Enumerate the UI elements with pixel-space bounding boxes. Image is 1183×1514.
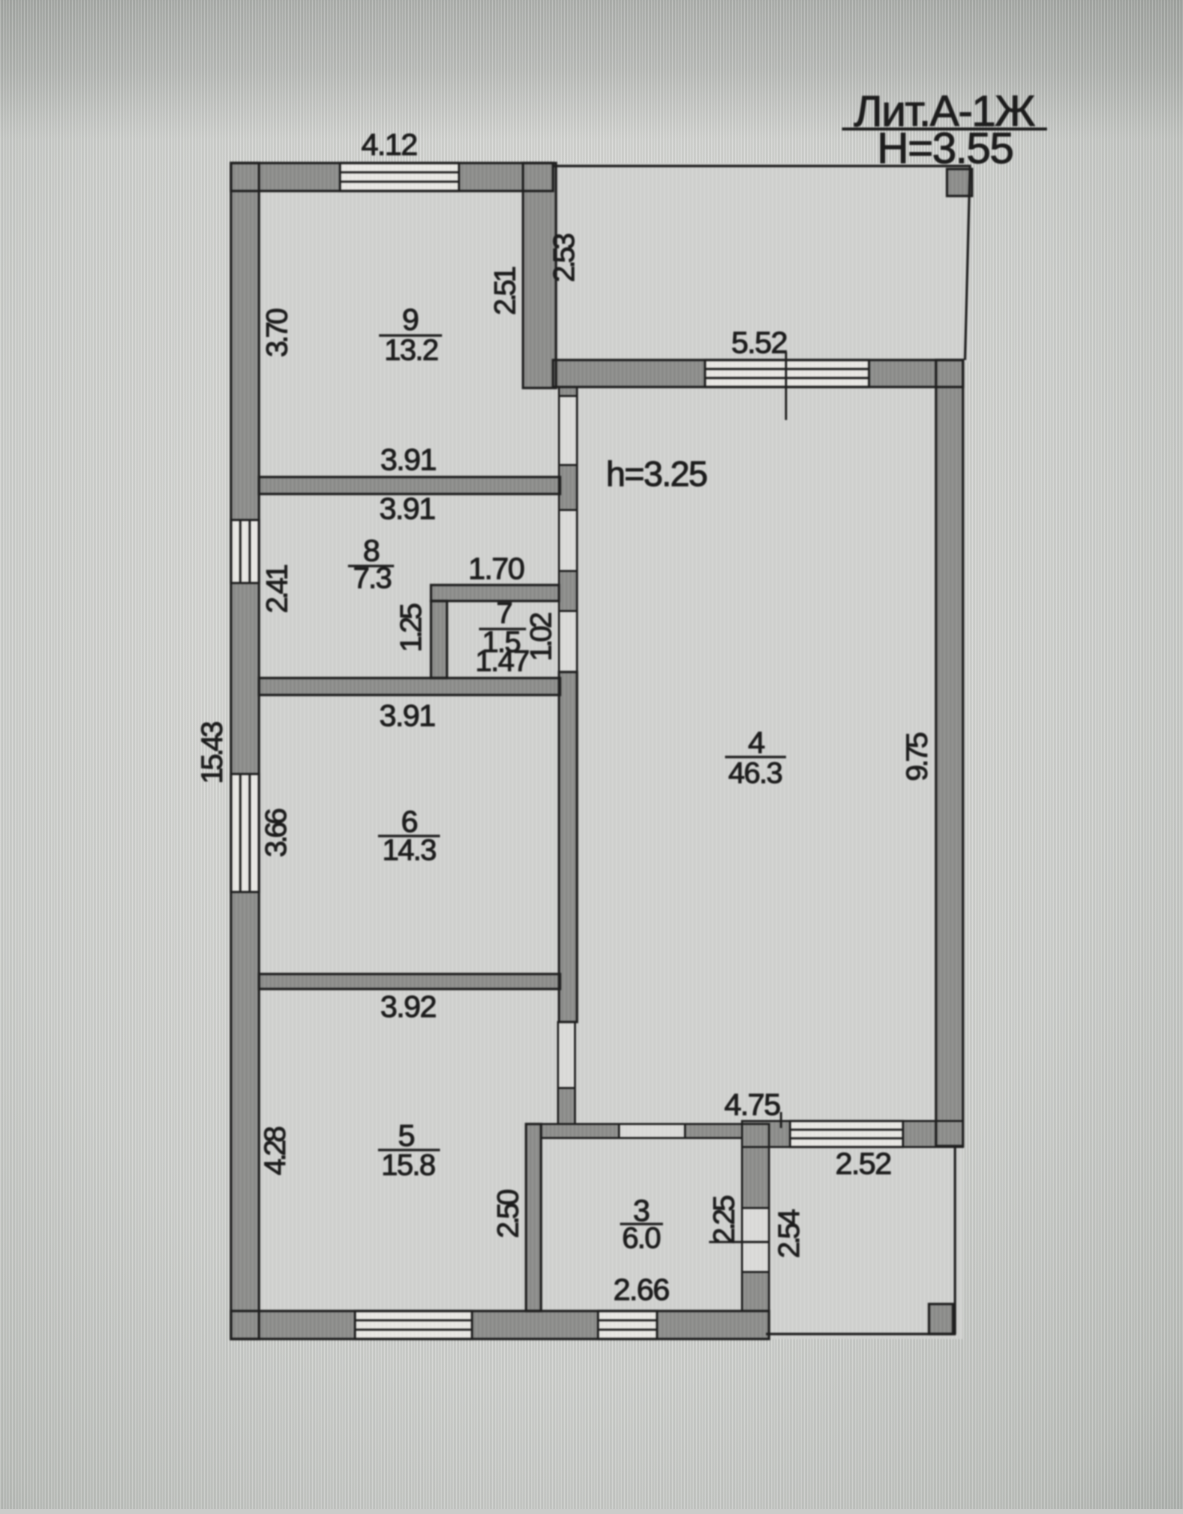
svg-text:4.12: 4.12 <box>361 127 417 162</box>
svg-text:1.70: 1.70 <box>468 551 524 586</box>
svg-text:3.70: 3.70 <box>261 308 294 357</box>
svg-text:2.25: 2.25 <box>708 1195 741 1244</box>
svg-text:5.52: 5.52 <box>731 325 787 360</box>
svg-text:2.50: 2.50 <box>492 1189 525 1238</box>
svg-text:15.43: 15.43 <box>196 722 229 784</box>
svg-text:4.75: 4.75 <box>724 1087 780 1122</box>
svg-text:4.28: 4.28 <box>259 1126 292 1175</box>
svg-text:7.3: 7.3 <box>353 562 392 595</box>
svg-text:3.91: 3.91 <box>380 442 436 477</box>
svg-text:1.5: 1.5 <box>482 626 521 659</box>
svg-text:6.0: 6.0 <box>622 1222 661 1255</box>
svg-text:1.25: 1.25 <box>395 603 428 652</box>
svg-text:1.02: 1.02 <box>525 612 558 661</box>
svg-text:3.91: 3.91 <box>379 491 435 526</box>
svg-text:3.66: 3.66 <box>260 808 293 857</box>
svg-text:2.66: 2.66 <box>613 1272 669 1307</box>
svg-text:2.52: 2.52 <box>835 1146 891 1181</box>
svg-text:9: 9 <box>402 302 418 337</box>
svg-text:Н=3.55: Н=3.55 <box>877 124 1013 173</box>
svg-text:2.54: 2.54 <box>773 1209 806 1258</box>
svg-text:14.3: 14.3 <box>382 834 436 867</box>
svg-text:13.2: 13.2 <box>384 334 438 367</box>
svg-text:2.51: 2.51 <box>489 266 522 315</box>
svg-text:2.53: 2.53 <box>548 233 581 282</box>
svg-text:3.91: 3.91 <box>379 698 435 733</box>
svg-text:46.3: 46.3 <box>728 757 782 790</box>
svg-text:h=3.25: h=3.25 <box>606 455 707 494</box>
svg-text:15.8: 15.8 <box>381 1149 435 1182</box>
svg-text:2.41: 2.41 <box>261 564 294 613</box>
svg-text:9.75: 9.75 <box>901 732 934 781</box>
svg-text:5: 5 <box>398 1118 414 1153</box>
svg-text:3.92: 3.92 <box>380 989 436 1024</box>
svg-text:4: 4 <box>748 725 765 760</box>
